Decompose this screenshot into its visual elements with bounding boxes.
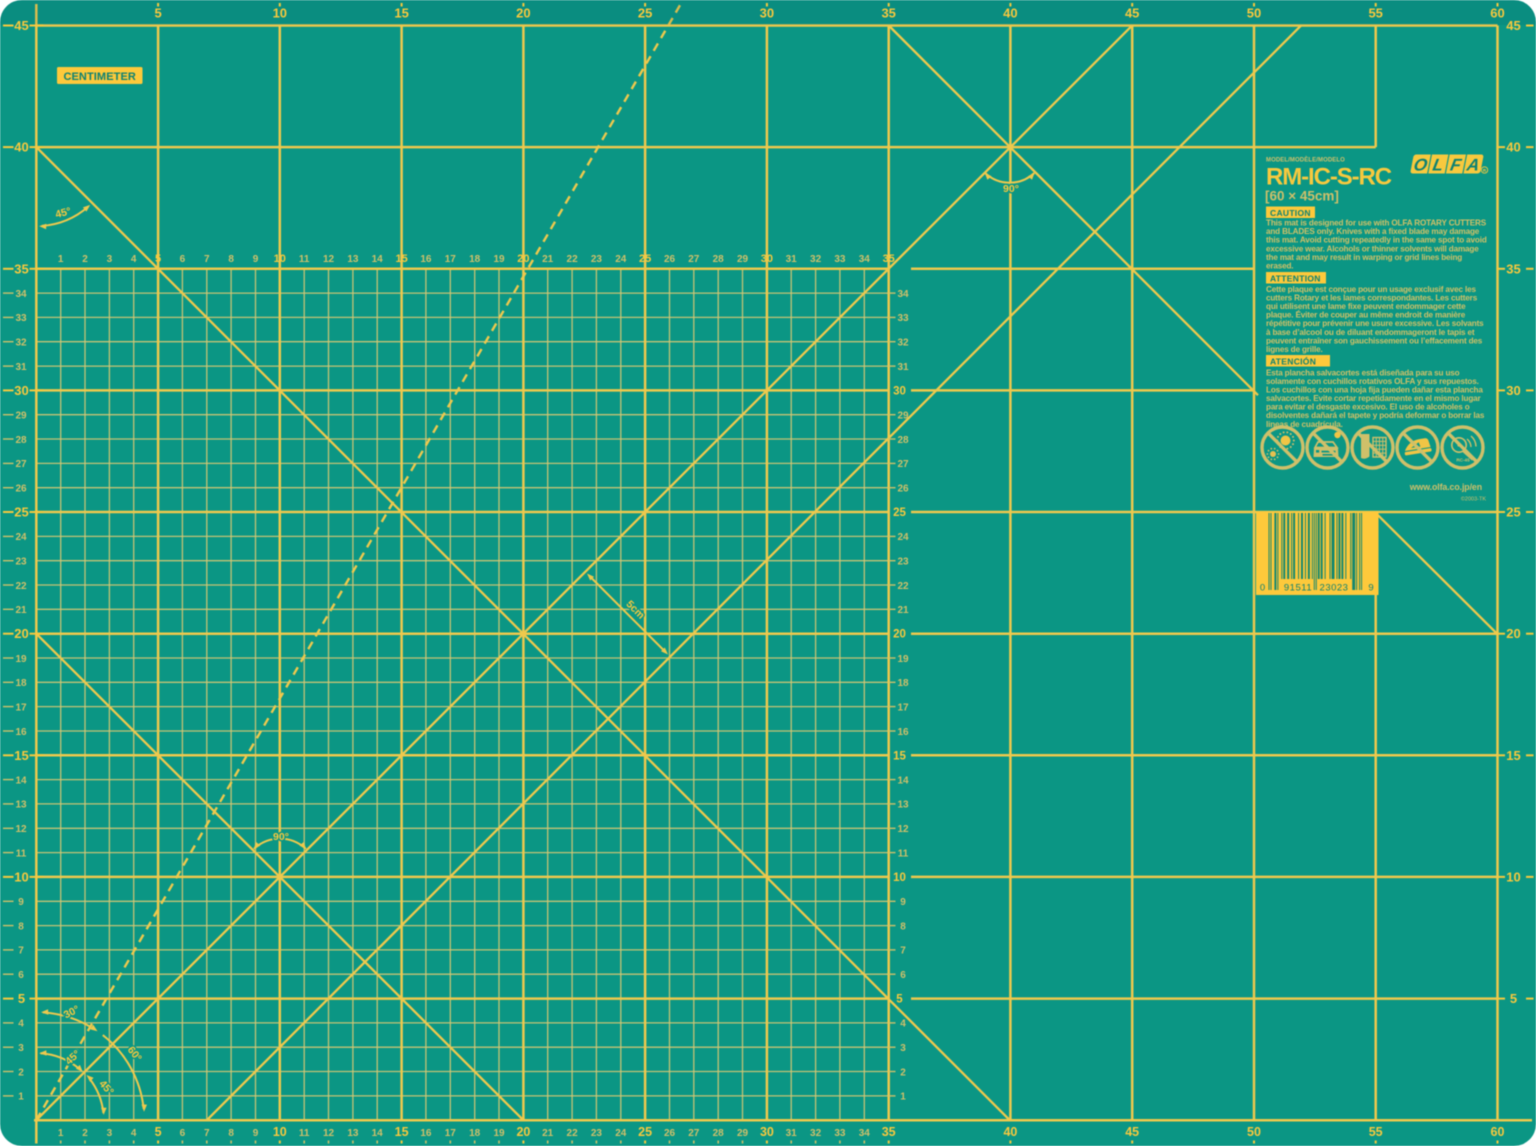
svg-text:20: 20 <box>14 626 28 641</box>
svg-text:55: 55 <box>1368 6 1382 21</box>
svg-text:16: 16 <box>420 1128 432 1139</box>
svg-text:25: 25 <box>1506 505 1520 520</box>
svg-text:31: 31 <box>786 254 798 265</box>
svg-text:18: 18 <box>15 678 27 689</box>
svg-text:9: 9 <box>900 897 906 908</box>
svg-text:27: 27 <box>688 254 700 265</box>
svg-text:23023: 23023 <box>1320 583 1349 594</box>
svg-text:0: 0 <box>1260 583 1265 594</box>
svg-text:8: 8 <box>228 1128 234 1139</box>
svg-text:19: 19 <box>493 1128 505 1139</box>
svg-text:3: 3 <box>107 254 113 265</box>
svg-text:14: 14 <box>372 254 384 265</box>
svg-text:30: 30 <box>893 385 906 397</box>
svg-text:30: 30 <box>14 383 28 398</box>
svg-text:10: 10 <box>273 1125 287 1139</box>
svg-text:6: 6 <box>18 970 24 981</box>
svg-text:5: 5 <box>154 6 161 21</box>
svg-text:5: 5 <box>18 991 25 1006</box>
svg-text:23: 23 <box>591 254 603 265</box>
svg-text:32: 32 <box>15 338 27 349</box>
svg-text:35: 35 <box>14 261 28 276</box>
svg-text:20: 20 <box>1506 626 1520 641</box>
svg-text:29: 29 <box>15 411 27 422</box>
svg-text:50: 50 <box>1247 6 1261 21</box>
svg-text:30: 30 <box>760 6 774 21</box>
svg-text:24: 24 <box>897 532 909 543</box>
svg-text:5: 5 <box>155 1125 162 1139</box>
svg-text:32: 32 <box>810 254 822 265</box>
svg-text:26: 26 <box>664 1128 676 1139</box>
svg-text:16: 16 <box>15 727 27 738</box>
svg-text:60: 60 <box>1491 1125 1505 1139</box>
svg-text:10: 10 <box>273 6 287 21</box>
svg-text:11: 11 <box>299 254 310 265</box>
svg-text:3: 3 <box>900 1043 906 1054</box>
svg-text:20: 20 <box>516 1125 530 1139</box>
svg-text:9: 9 <box>253 254 259 265</box>
svg-text:33: 33 <box>897 313 909 324</box>
svg-text:RM-IC-S-RC: RM-IC-S-RC <box>1266 164 1392 191</box>
svg-text:31: 31 <box>786 1128 798 1139</box>
svg-text:50: 50 <box>1247 1125 1261 1139</box>
svg-text:15: 15 <box>395 1125 409 1139</box>
svg-text:12: 12 <box>323 254 335 265</box>
svg-text:14: 14 <box>897 775 909 786</box>
svg-text:13: 13 <box>897 800 909 811</box>
svg-text:15: 15 <box>394 6 408 21</box>
svg-text:2: 2 <box>82 254 88 265</box>
svg-text:8: 8 <box>18 921 24 932</box>
svg-text:35: 35 <box>883 253 895 265</box>
svg-text:60: 60 <box>1490 6 1504 21</box>
svg-text:2: 2 <box>18 1067 24 1078</box>
svg-text:17: 17 <box>445 1128 457 1139</box>
svg-text:12: 12 <box>15 824 27 835</box>
svg-text:21: 21 <box>897 605 909 616</box>
svg-text:2: 2 <box>82 1128 88 1139</box>
svg-text:1: 1 <box>18 1092 24 1103</box>
svg-text:27: 27 <box>15 459 27 470</box>
svg-text:45: 45 <box>1125 6 1139 21</box>
svg-text:18: 18 <box>897 678 909 689</box>
svg-text:RC-45: RC-45 <box>1456 457 1470 462</box>
svg-text:55: 55 <box>1369 1125 1383 1139</box>
svg-text:1: 1 <box>58 1128 64 1139</box>
svg-text:lignes de grille.: lignes de grille. <box>1266 345 1323 354</box>
svg-text:34: 34 <box>859 254 871 265</box>
svg-text:25: 25 <box>638 6 652 21</box>
svg-text:25: 25 <box>639 253 651 265</box>
svg-text:ATTENTION: ATTENTION <box>1270 273 1321 283</box>
svg-text:7: 7 <box>204 254 210 265</box>
svg-text:30: 30 <box>1506 383 1520 398</box>
svg-text:24: 24 <box>15 532 27 543</box>
svg-text:30: 30 <box>760 1125 774 1139</box>
svg-text:27: 27 <box>688 1128 700 1139</box>
svg-text:91511: 91511 <box>1284 583 1312 594</box>
svg-text:40: 40 <box>1003 1125 1017 1139</box>
svg-text:26: 26 <box>15 484 27 495</box>
svg-text:40: 40 <box>1003 6 1017 21</box>
svg-text:35: 35 <box>882 1125 896 1139</box>
svg-text:15: 15 <box>893 750 906 762</box>
svg-text:7: 7 <box>900 946 906 957</box>
svg-text:20: 20 <box>893 629 906 641</box>
svg-text:28: 28 <box>713 254 725 265</box>
svg-text:33: 33 <box>834 1128 846 1139</box>
svg-text:12: 12 <box>323 1128 335 1139</box>
svg-text:17: 17 <box>897 702 909 713</box>
svg-text:22: 22 <box>15 581 27 592</box>
svg-text:14: 14 <box>372 1128 384 1139</box>
svg-text:7: 7 <box>18 946 24 957</box>
svg-text:19: 19 <box>15 654 27 665</box>
svg-text:24: 24 <box>615 254 627 265</box>
svg-text:29: 29 <box>897 411 909 422</box>
svg-text:26: 26 <box>897 484 909 495</box>
svg-text:22: 22 <box>567 254 579 265</box>
svg-text:21: 21 <box>542 1128 554 1139</box>
svg-text:20: 20 <box>516 6 530 21</box>
svg-text:23: 23 <box>591 1128 603 1139</box>
svg-text:23: 23 <box>15 557 27 568</box>
svg-text:45: 45 <box>14 18 28 33</box>
svg-text:13: 13 <box>347 1128 359 1139</box>
svg-text:11: 11 <box>299 1128 310 1139</box>
svg-text:11: 11 <box>16 848 27 859</box>
svg-text:25: 25 <box>638 1125 652 1139</box>
svg-text:erased.: erased. <box>1266 262 1293 271</box>
svg-text:33: 33 <box>15 313 27 324</box>
svg-text:28: 28 <box>15 435 27 446</box>
svg-text:13: 13 <box>347 254 359 265</box>
svg-text:2: 2 <box>900 1067 906 1078</box>
svg-text:MODEL/MODÈLE/MODELO: MODEL/MODÈLE/MODELO <box>1266 156 1345 164</box>
svg-text:20: 20 <box>517 253 529 265</box>
svg-text:30: 30 <box>761 253 773 265</box>
svg-text:11: 11 <box>898 848 909 859</box>
svg-text:21: 21 <box>542 254 554 265</box>
svg-text:34: 34 <box>897 289 909 300</box>
svg-text:22: 22 <box>897 581 909 592</box>
svg-text:10: 10 <box>14 869 28 884</box>
svg-text:9: 9 <box>18 897 24 908</box>
svg-text:28: 28 <box>897 435 909 446</box>
svg-text:1: 1 <box>58 254 64 265</box>
svg-text:33: 33 <box>834 254 846 265</box>
svg-text:25: 25 <box>14 505 28 520</box>
svg-text:6: 6 <box>180 254 186 265</box>
svg-text:22: 22 <box>567 1128 579 1139</box>
svg-text:29: 29 <box>737 254 749 265</box>
svg-text:15: 15 <box>1506 748 1520 763</box>
svg-text:8: 8 <box>900 921 906 932</box>
svg-text:10: 10 <box>893 872 906 884</box>
svg-text:4: 4 <box>18 1019 24 1030</box>
svg-text:31: 31 <box>15 362 27 373</box>
svg-text:6: 6 <box>180 1128 186 1139</box>
svg-text:13: 13 <box>15 800 27 811</box>
svg-text:23: 23 <box>897 557 909 568</box>
svg-text:16: 16 <box>897 727 909 738</box>
svg-text:35: 35 <box>1506 261 1520 276</box>
svg-text:6: 6 <box>900 970 906 981</box>
svg-text:www.olfa.co.jp/en: www.olfa.co.jp/en <box>1409 482 1482 492</box>
svg-text:12: 12 <box>897 824 909 835</box>
svg-text:90°: 90° <box>273 831 289 843</box>
svg-text:10: 10 <box>274 253 286 265</box>
svg-text:16: 16 <box>420 254 432 265</box>
svg-text:40: 40 <box>1506 140 1520 155</box>
svg-text:27: 27 <box>897 459 909 470</box>
svg-text:29: 29 <box>737 1128 749 1139</box>
svg-text:1: 1 <box>900 1092 906 1103</box>
svg-text:8: 8 <box>228 254 234 265</box>
svg-text:45: 45 <box>1506 18 1520 33</box>
svg-text:4: 4 <box>900 1019 906 1030</box>
svg-text:28: 28 <box>713 1128 725 1139</box>
svg-text:45: 45 <box>1125 1125 1139 1139</box>
svg-text:5: 5 <box>896 994 903 1006</box>
svg-text:19: 19 <box>493 254 505 265</box>
svg-text:35: 35 <box>881 6 895 21</box>
svg-text:21: 21 <box>15 605 27 616</box>
svg-text:CAUTION: CAUTION <box>1270 208 1311 218</box>
svg-text:24: 24 <box>615 1128 627 1139</box>
svg-text:26: 26 <box>664 254 676 265</box>
svg-text:15: 15 <box>14 748 28 763</box>
svg-text:9: 9 <box>253 1128 259 1139</box>
svg-text:5: 5 <box>155 253 161 265</box>
svg-text:9: 9 <box>1368 583 1373 594</box>
svg-text:ATENCIÓN: ATENCIÓN <box>1270 355 1316 366</box>
svg-text:plaque. Éviter de couper au mê: plaque. Éviter de couper au même endroit… <box>1266 310 1466 320</box>
svg-text:5: 5 <box>1510 991 1517 1006</box>
svg-text:32: 32 <box>810 1128 822 1139</box>
svg-text:3: 3 <box>18 1043 24 1054</box>
svg-text:40: 40 <box>14 140 28 155</box>
svg-text:18: 18 <box>469 254 481 265</box>
svg-text:[60 × 45cm]: [60 × 45cm] <box>1265 189 1339 204</box>
svg-text:4: 4 <box>131 1128 137 1139</box>
svg-text:10: 10 <box>1506 869 1520 884</box>
svg-text:90°: 90° <box>1003 183 1019 195</box>
svg-text:32: 32 <box>897 338 909 349</box>
svg-text:CENTIMETER: CENTIMETER <box>63 71 136 83</box>
svg-text:the mat and may result in warp: the mat and may result in warping or gri… <box>1266 253 1462 262</box>
svg-text:18: 18 <box>469 1128 481 1139</box>
svg-text:17: 17 <box>445 254 457 265</box>
svg-text:34: 34 <box>859 1128 871 1139</box>
svg-text:17: 17 <box>15 702 27 713</box>
svg-text:25: 25 <box>893 507 906 519</box>
svg-text:15: 15 <box>395 253 407 265</box>
svg-text:34: 34 <box>15 289 27 300</box>
svg-text:31: 31 <box>897 362 909 373</box>
svg-text:©2003-TK: ©2003-TK <box>1461 496 1486 503</box>
svg-text:19: 19 <box>897 654 909 665</box>
svg-text:3: 3 <box>107 1128 113 1139</box>
svg-text:7: 7 <box>204 1128 210 1139</box>
svg-text:4: 4 <box>131 254 137 265</box>
svg-text:14: 14 <box>15 775 27 786</box>
